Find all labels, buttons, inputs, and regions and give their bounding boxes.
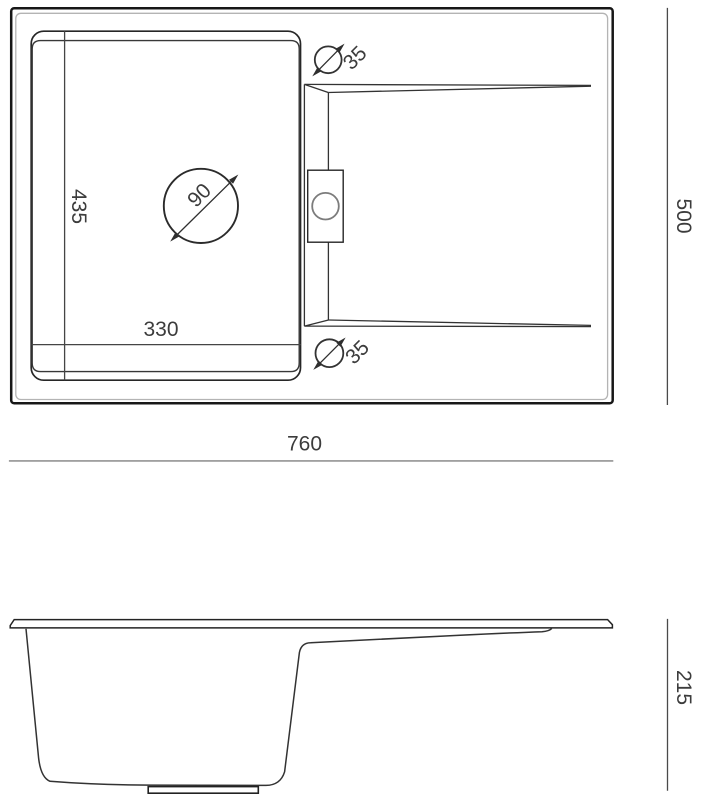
svg-text:435: 435 [67,189,90,224]
svg-text:35: 35 [341,336,374,369]
svg-text:500: 500 [672,198,695,233]
svg-text:760: 760 [287,433,322,456]
svg-text:215: 215 [672,670,695,705]
svg-text:330: 330 [143,318,178,341]
svg-text:90: 90 [183,179,216,212]
svg-text:35: 35 [339,42,372,75]
